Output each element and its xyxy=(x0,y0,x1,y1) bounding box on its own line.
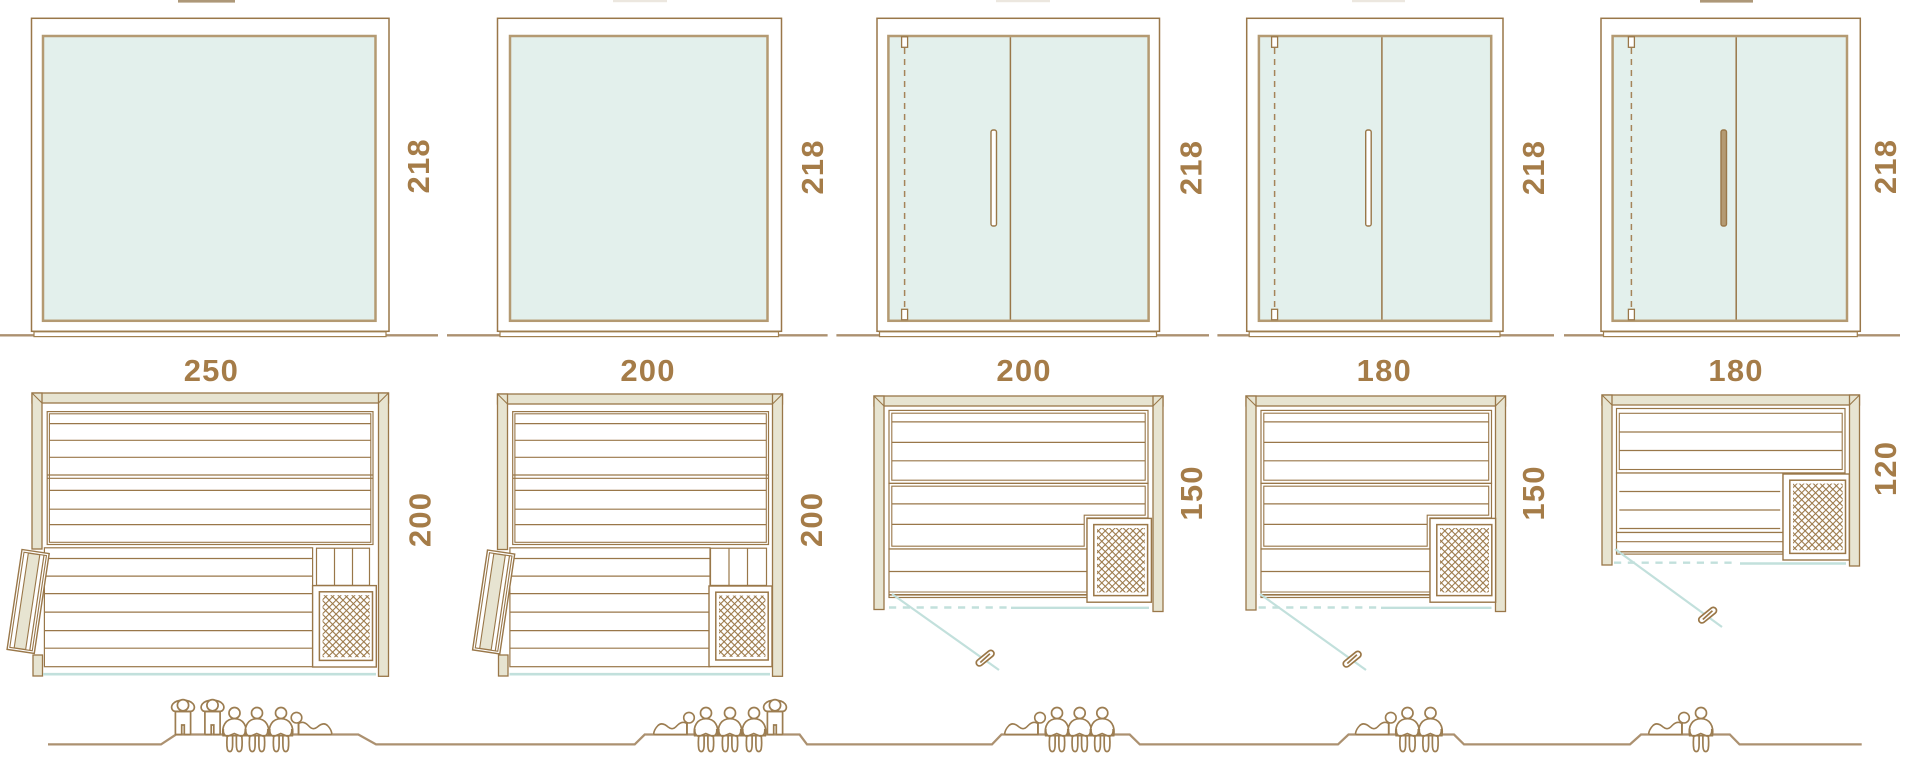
svg-text:200: 200 xyxy=(402,492,437,547)
svg-text:218: 218 xyxy=(1516,140,1551,195)
svg-text:218: 218 xyxy=(795,139,830,194)
svg-text:180: 180 xyxy=(1357,353,1412,388)
svg-text:200: 200 xyxy=(794,492,829,547)
svg-text:150: 150 xyxy=(1516,465,1551,520)
svg-text:180: 180 xyxy=(1708,353,1763,388)
svg-text:200: 200 xyxy=(996,353,1051,388)
svg-text:218: 218 xyxy=(1868,139,1903,194)
svg-text:120: 120 xyxy=(1868,441,1903,496)
svg-text:200: 200 xyxy=(620,353,675,388)
svg-text:218: 218 xyxy=(1174,140,1209,195)
svg-text:150: 150 xyxy=(1174,465,1209,520)
svg-text:218: 218 xyxy=(401,138,436,193)
svg-text:250: 250 xyxy=(184,353,239,388)
